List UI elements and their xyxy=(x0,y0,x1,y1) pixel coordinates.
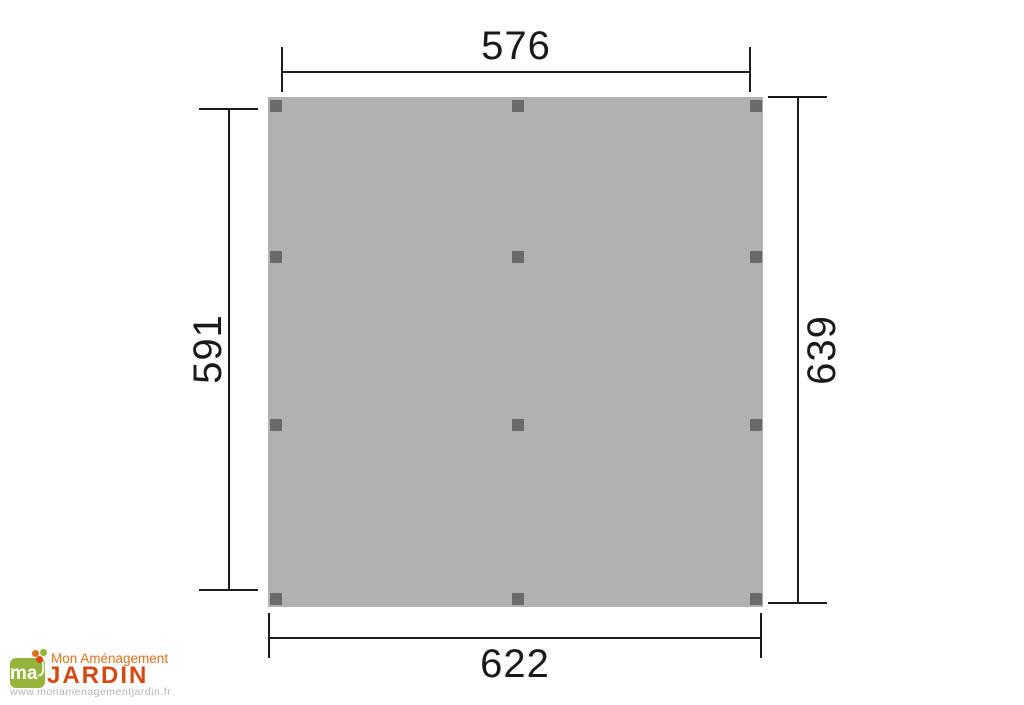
dimension-right-line xyxy=(797,97,799,603)
dimension-top-tick-right xyxy=(749,47,751,92)
post xyxy=(512,251,524,263)
post xyxy=(512,593,524,605)
dimension-bottom-line xyxy=(269,637,762,639)
post xyxy=(270,419,282,431)
post xyxy=(750,593,762,605)
logo-website-url: www.monamenagementjardin.fr xyxy=(10,686,171,698)
post xyxy=(512,100,524,112)
logo-monogram-text: ma xyxy=(10,664,37,683)
dimension-bottom-value: 622 xyxy=(480,644,550,684)
post xyxy=(750,100,762,112)
clover-icon xyxy=(32,649,48,665)
dimension-top-value: 576 xyxy=(481,26,551,66)
post xyxy=(270,100,282,112)
dimension-bottom-tick-right xyxy=(760,613,762,658)
post xyxy=(750,251,762,263)
drawing-canvas: 576 622 591 639 ma Mon Aménagement JARD xyxy=(0,0,1024,705)
post xyxy=(512,419,524,431)
dimension-left-tick-top xyxy=(199,108,258,110)
site-logo: ma Mon Aménagement JARDIN www.monamenage… xyxy=(0,640,220,705)
dimension-bottom-tick-left xyxy=(268,613,270,658)
dimension-right-value: 639 xyxy=(802,315,842,385)
dimension-left-value: 591 xyxy=(188,314,228,384)
dimension-left-tick-bottom xyxy=(199,589,258,591)
dimension-right-tick-bottom xyxy=(768,602,827,604)
post xyxy=(270,593,282,605)
post xyxy=(750,419,762,431)
carport-roof-panel xyxy=(268,97,763,607)
dimension-top-line xyxy=(282,71,750,73)
dimension-right-tick-top xyxy=(768,96,827,98)
post xyxy=(270,251,282,263)
dimension-top-tick-left xyxy=(281,47,283,92)
